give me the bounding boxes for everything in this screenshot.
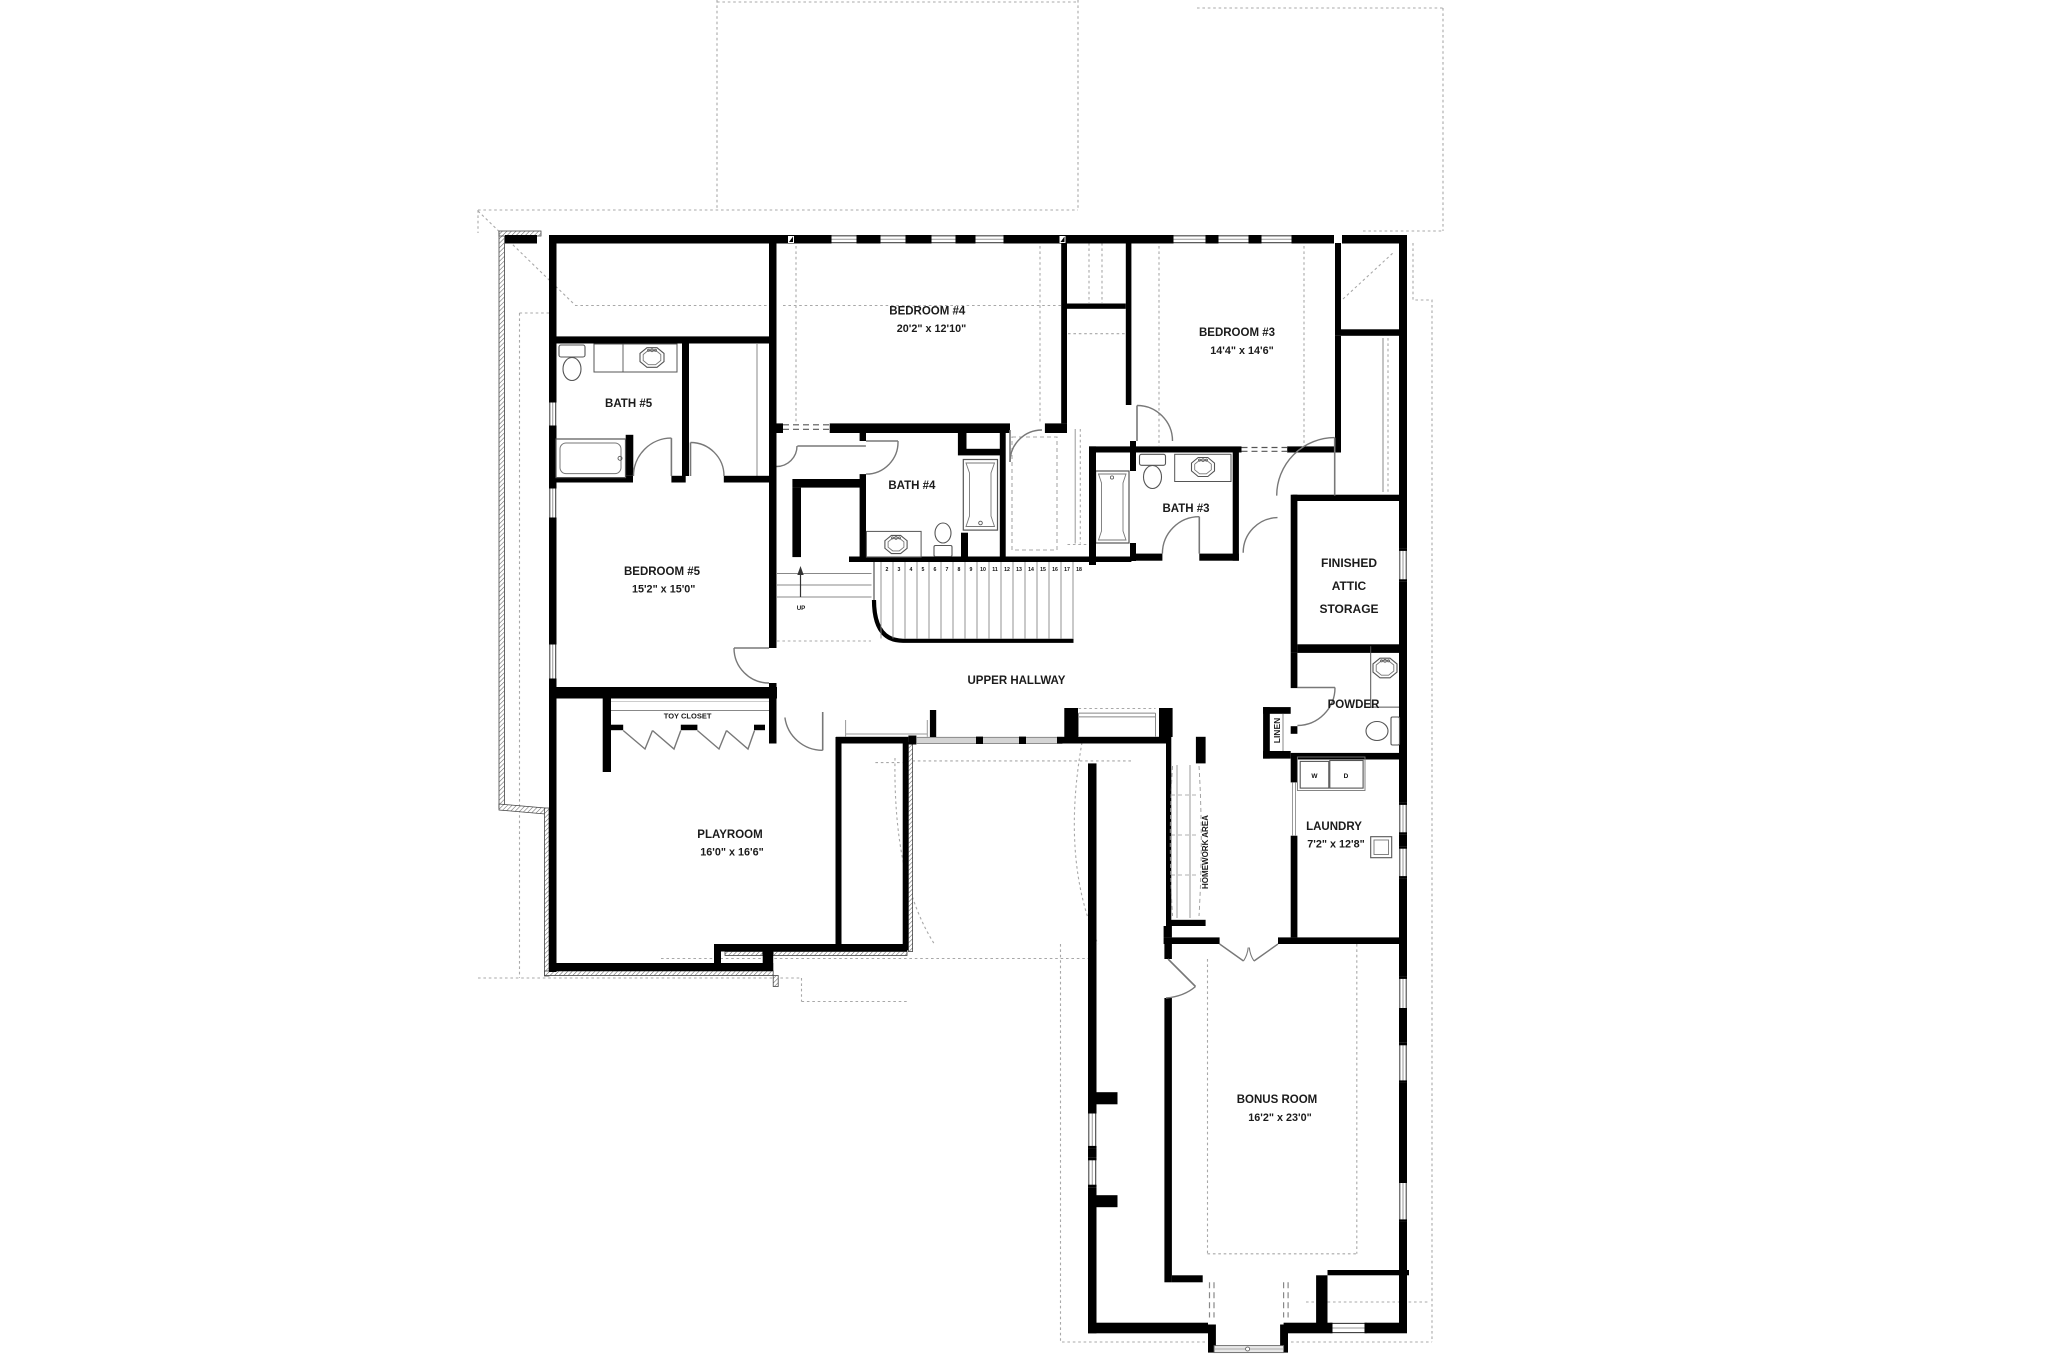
svg-text:BONUS ROOM: BONUS ROOM <box>1237 1094 1318 1106</box>
svg-text:9: 9 <box>970 567 973 573</box>
svg-text:2: 2 <box>886 567 889 573</box>
svg-text:UP: UP <box>797 605 806 612</box>
svg-text:15: 15 <box>1040 567 1046 573</box>
svg-text:20'2" x 12'10": 20'2" x 12'10" <box>897 323 966 335</box>
svg-text:14'4" x 14'6": 14'4" x 14'6" <box>1210 345 1273 357</box>
svg-text:BEDROOM #5: BEDROOM #5 <box>624 566 701 578</box>
svg-text:16: 16 <box>1052 567 1058 573</box>
svg-text:D: D <box>1344 773 1349 780</box>
svg-text:BEDROOM #3: BEDROOM #3 <box>1199 327 1275 339</box>
svg-text:LINEN: LINEN <box>1272 718 1282 744</box>
svg-text:7: 7 <box>946 567 949 573</box>
svg-text:17: 17 <box>1064 567 1070 573</box>
svg-text:7'2" x 12'8": 7'2" x 12'8" <box>1307 839 1364 851</box>
svg-text:18: 18 <box>1076 567 1082 573</box>
svg-text:ATTIC: ATTIC <box>1332 579 1367 593</box>
svg-text:12: 12 <box>1004 567 1010 573</box>
svg-text:11: 11 <box>992 567 998 573</box>
svg-text:3: 3 <box>898 567 901 573</box>
svg-text:16'2" x 23'0": 16'2" x 23'0" <box>1248 1112 1311 1124</box>
svg-text:LAUNDRY: LAUNDRY <box>1306 821 1362 833</box>
svg-text:14: 14 <box>1028 567 1034 573</box>
svg-text:15'2" x 15'0": 15'2" x 15'0" <box>632 584 695 596</box>
svg-text:13: 13 <box>1016 567 1022 573</box>
svg-text:UPPER HALLWAY: UPPER HALLWAY <box>968 675 1066 687</box>
svg-text:5: 5 <box>922 567 925 573</box>
svg-text:BATH #5: BATH #5 <box>605 398 653 410</box>
svg-text:HOMEWORK AREA: HOMEWORK AREA <box>1201 815 1210 889</box>
svg-text:STORAGE: STORAGE <box>1319 602 1378 616</box>
svg-text:BATH #4: BATH #4 <box>888 480 936 492</box>
svg-text:8: 8 <box>958 567 961 573</box>
svg-text:W: W <box>1311 773 1318 780</box>
svg-text:10: 10 <box>980 567 986 573</box>
svg-text:BATH #3: BATH #3 <box>1162 503 1209 515</box>
svg-text:6: 6 <box>934 567 937 573</box>
svg-text:POWDER: POWDER <box>1328 699 1380 711</box>
svg-text:16'0" x 16'6": 16'0" x 16'6" <box>700 846 763 858</box>
svg-text:BEDROOM #4: BEDROOM #4 <box>889 306 966 318</box>
svg-text:FINISHED: FINISHED <box>1321 556 1377 570</box>
svg-text:TOY CLOSET: TOY CLOSET <box>664 712 712 721</box>
svg-text:PLAYROOM: PLAYROOM <box>697 829 762 841</box>
svg-text:4: 4 <box>910 567 913 573</box>
